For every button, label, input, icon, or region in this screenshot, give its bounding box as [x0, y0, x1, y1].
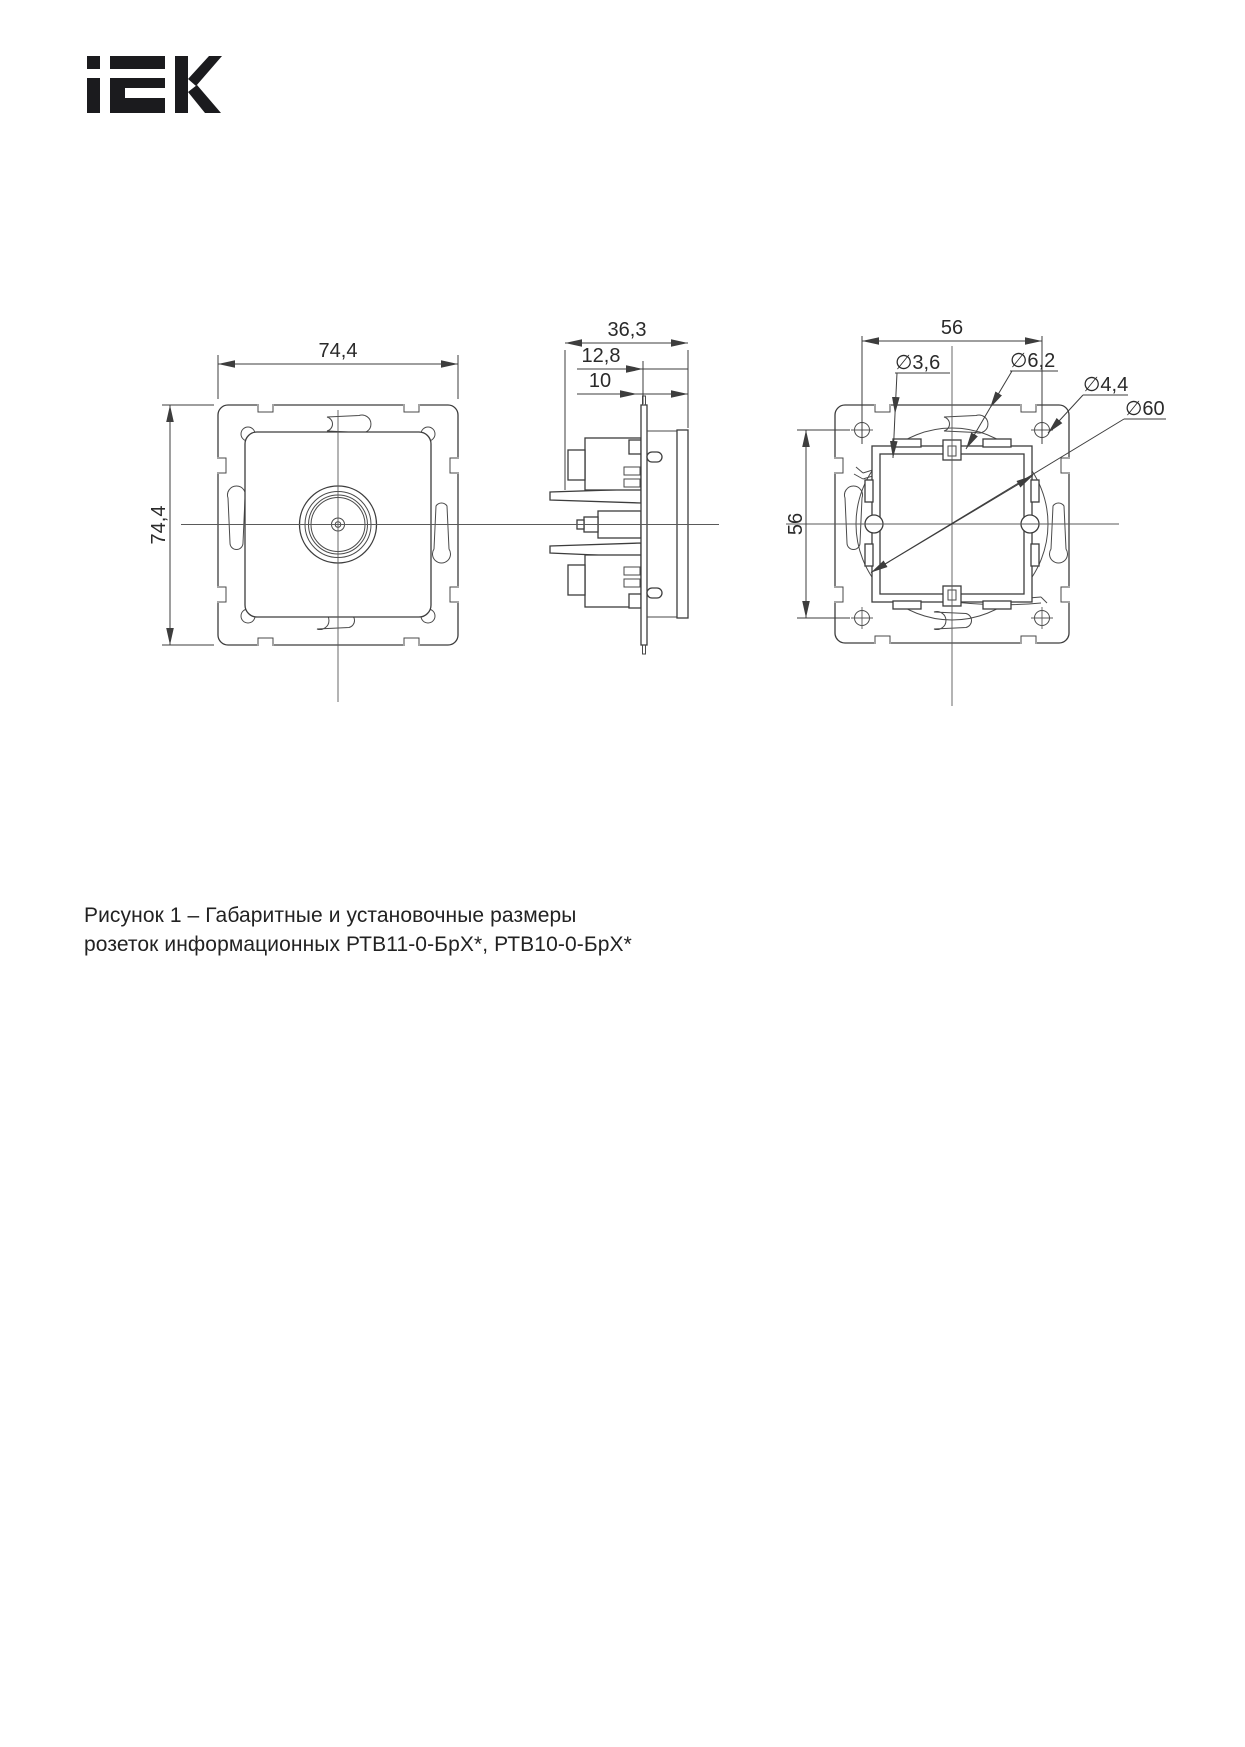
dim-label-dia-mount: ∅60 [1125, 398, 1165, 420]
document-page: 74,4 74,4 [0, 0, 1245, 1747]
side-view: 36,3 12,8 10 [478, 319, 719, 654]
dim-label-side-depth: 36,3 [608, 319, 647, 341]
side-support-plate [641, 405, 647, 645]
figure-caption-line1: Рисунок 1 – Габаритные и установочные ра… [84, 901, 632, 930]
front-view: 74,4 74,4 [148, 340, 496, 702]
back-view: 56 56 ∅3,6 ∅6, [785, 317, 1166, 706]
dimension-drawing: 74,4 74,4 [0, 0, 1245, 1747]
dim-label-side-mid: 12,8 [582, 345, 621, 367]
dim-label-dia-screw: ∅4,4 [1083, 374, 1128, 396]
dim-label-back-h: 56 [941, 317, 963, 339]
figure-caption: Рисунок 1 – Габаритные и установочные ра… [84, 901, 632, 959]
side-strap-arm-top [550, 489, 641, 503]
dim-label-dia-slot: ∅6,2 [1010, 350, 1055, 372]
side-frame-profile [677, 430, 688, 618]
dim-label-front-width: 74,4 [319, 340, 358, 362]
dim-label-side-inner: 10 [589, 370, 611, 392]
dim-label-back-v: 56 [785, 513, 807, 535]
front-dim-height: 74,4 [148, 405, 214, 645]
front-dim-width: 74,4 [218, 340, 458, 399]
side-dim-inner: 10 [577, 370, 688, 394]
dim-label-front-height: 74,4 [148, 506, 170, 545]
dim-label-dia-claw: ∅3,6 [895, 352, 940, 374]
figure-caption-line2: розеток информационных РТВ11-0-БрХ*, РТВ… [84, 930, 632, 959]
